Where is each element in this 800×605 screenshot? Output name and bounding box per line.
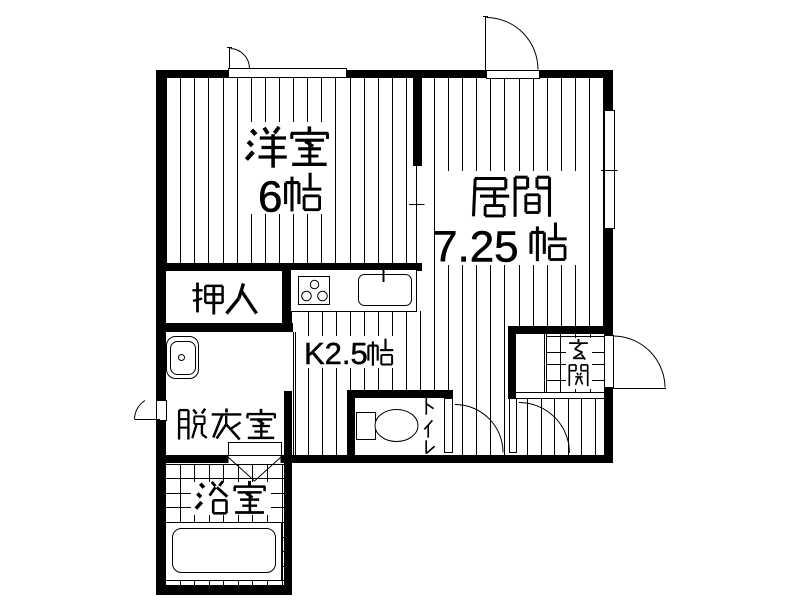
svg-text:6: 6 bbox=[258, 173, 282, 222]
svg-text:7.25: 7.25 bbox=[433, 223, 519, 272]
svg-text:K2.5: K2.5 bbox=[304, 336, 368, 371]
